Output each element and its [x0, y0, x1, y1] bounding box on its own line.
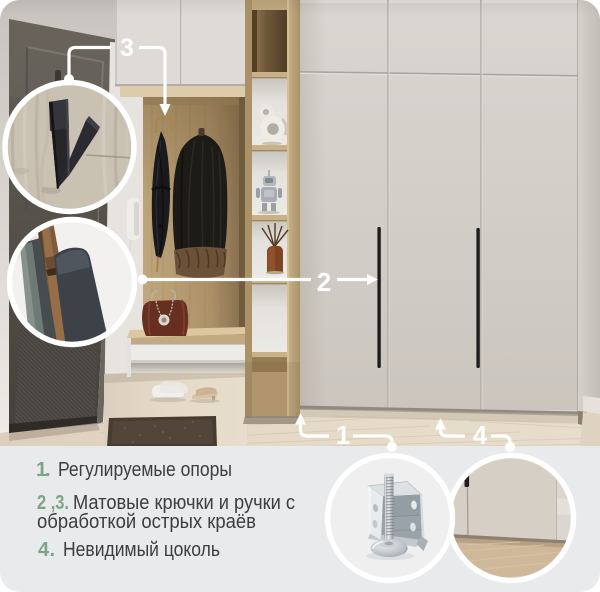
- svg-text:4.: 4.: [38, 539, 55, 561]
- svg-text:обработкой острых краёв: обработкой острых краёв: [37, 511, 256, 533]
- svg-text:1: 1: [336, 420, 350, 450]
- svg-text:2: 2: [317, 267, 331, 297]
- svg-text:Невидимый цоколь: Невидимый цоколь: [63, 539, 220, 561]
- svg-text:3: 3: [120, 34, 134, 62]
- svg-text:1.: 1.: [36, 459, 51, 481]
- svg-text:Регулируемые опоры: Регулируемые опоры: [58, 459, 232, 481]
- svg-text:4: 4: [473, 420, 488, 450]
